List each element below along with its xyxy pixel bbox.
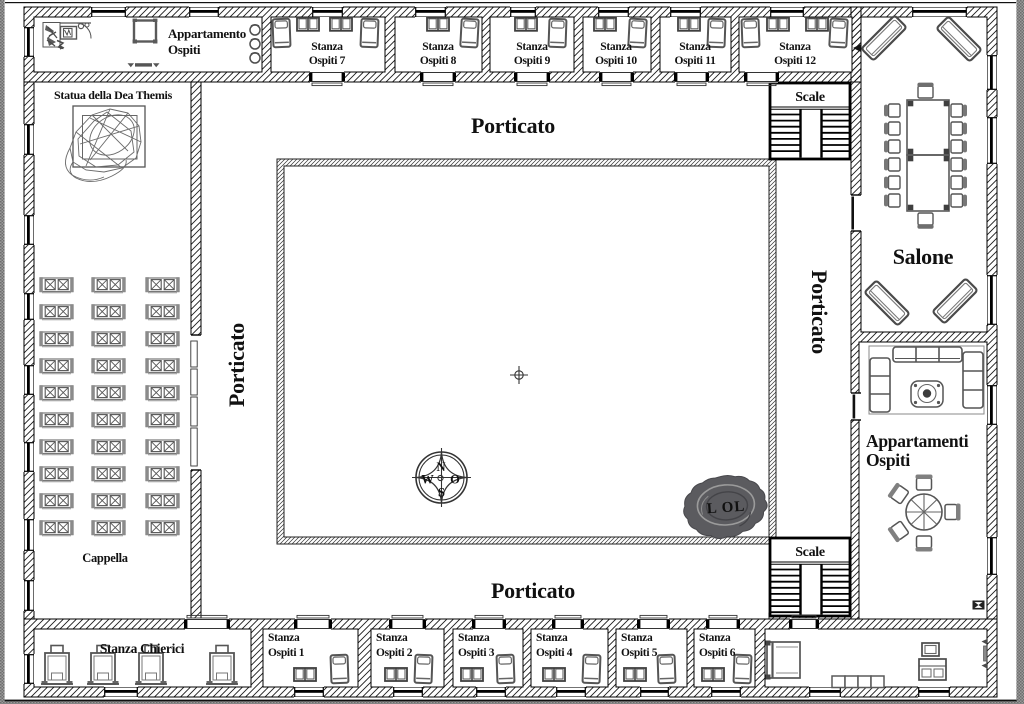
svg-text:Stanza: Stanza — [376, 632, 408, 644]
svg-text:Stanza: Stanza — [311, 41, 343, 53]
svg-text:Ospiti 11: Ospiti 11 — [674, 55, 716, 67]
svg-text:Porticato: Porticato — [491, 578, 575, 603]
svg-text:Stanza Chierici: Stanza Chierici — [100, 641, 185, 656]
svg-text:Ospiti 8: Ospiti 8 — [420, 55, 457, 67]
svg-text:Ospiti 6: Ospiti 6 — [699, 647, 736, 659]
svg-text:S: S — [438, 486, 445, 500]
svg-text:Ospiti 2: Ospiti 2 — [376, 647, 413, 659]
svg-text:Ospiti 7: Ospiti 7 — [309, 55, 346, 67]
svg-text:Ospiti 1: Ospiti 1 — [268, 647, 305, 659]
svg-text:L OL: L OL — [706, 499, 746, 518]
svg-text:Porticato: Porticato — [224, 323, 249, 407]
svg-text:Ospiti: Ospiti — [866, 450, 910, 470]
svg-text:Appartamenti: Appartamenti — [866, 431, 969, 451]
svg-text:Scale: Scale — [795, 545, 825, 560]
svg-text:Ospiti 4: Ospiti 4 — [536, 647, 573, 659]
svg-text:O: O — [450, 473, 460, 487]
svg-text:Cappella: Cappella — [82, 551, 129, 565]
svg-text:Porticato: Porticato — [807, 270, 832, 354]
svg-text:Stanza: Stanza — [600, 41, 632, 53]
svg-text:Ospiti 9: Ospiti 9 — [514, 55, 551, 67]
svg-text:Ospiti: Ospiti — [168, 42, 201, 57]
svg-text:Stanza: Stanza — [621, 632, 653, 644]
svg-text:Ospiti 12: Ospiti 12 — [774, 55, 816, 67]
svg-text:Stanza: Stanza — [679, 41, 711, 53]
svg-text:Ospiti 3: Ospiti 3 — [458, 647, 495, 659]
svg-text:W: W — [421, 473, 434, 487]
svg-text:Appartamento: Appartamento — [168, 26, 246, 41]
svg-text:Salone: Salone — [893, 244, 954, 269]
svg-text:Ospiti 5: Ospiti 5 — [621, 647, 658, 659]
svg-text:Stanza: Stanza — [779, 41, 811, 53]
svg-text:Statua della Dea Themis: Statua della Dea Themis — [54, 88, 173, 102]
svg-text:Porticato: Porticato — [471, 113, 555, 138]
svg-text:N: N — [436, 460, 445, 474]
svg-text:Ospiti 10: Ospiti 10 — [595, 55, 637, 67]
svg-text:Stanza: Stanza — [536, 632, 568, 644]
svg-text:Stanza: Stanza — [699, 632, 731, 644]
svg-text:Scale: Scale — [795, 90, 825, 105]
svg-text:Stanza: Stanza — [516, 41, 548, 53]
svg-text:Stanza: Stanza — [268, 632, 300, 644]
svg-text:Stanza: Stanza — [458, 632, 490, 644]
svg-text:Stanza: Stanza — [422, 41, 454, 53]
